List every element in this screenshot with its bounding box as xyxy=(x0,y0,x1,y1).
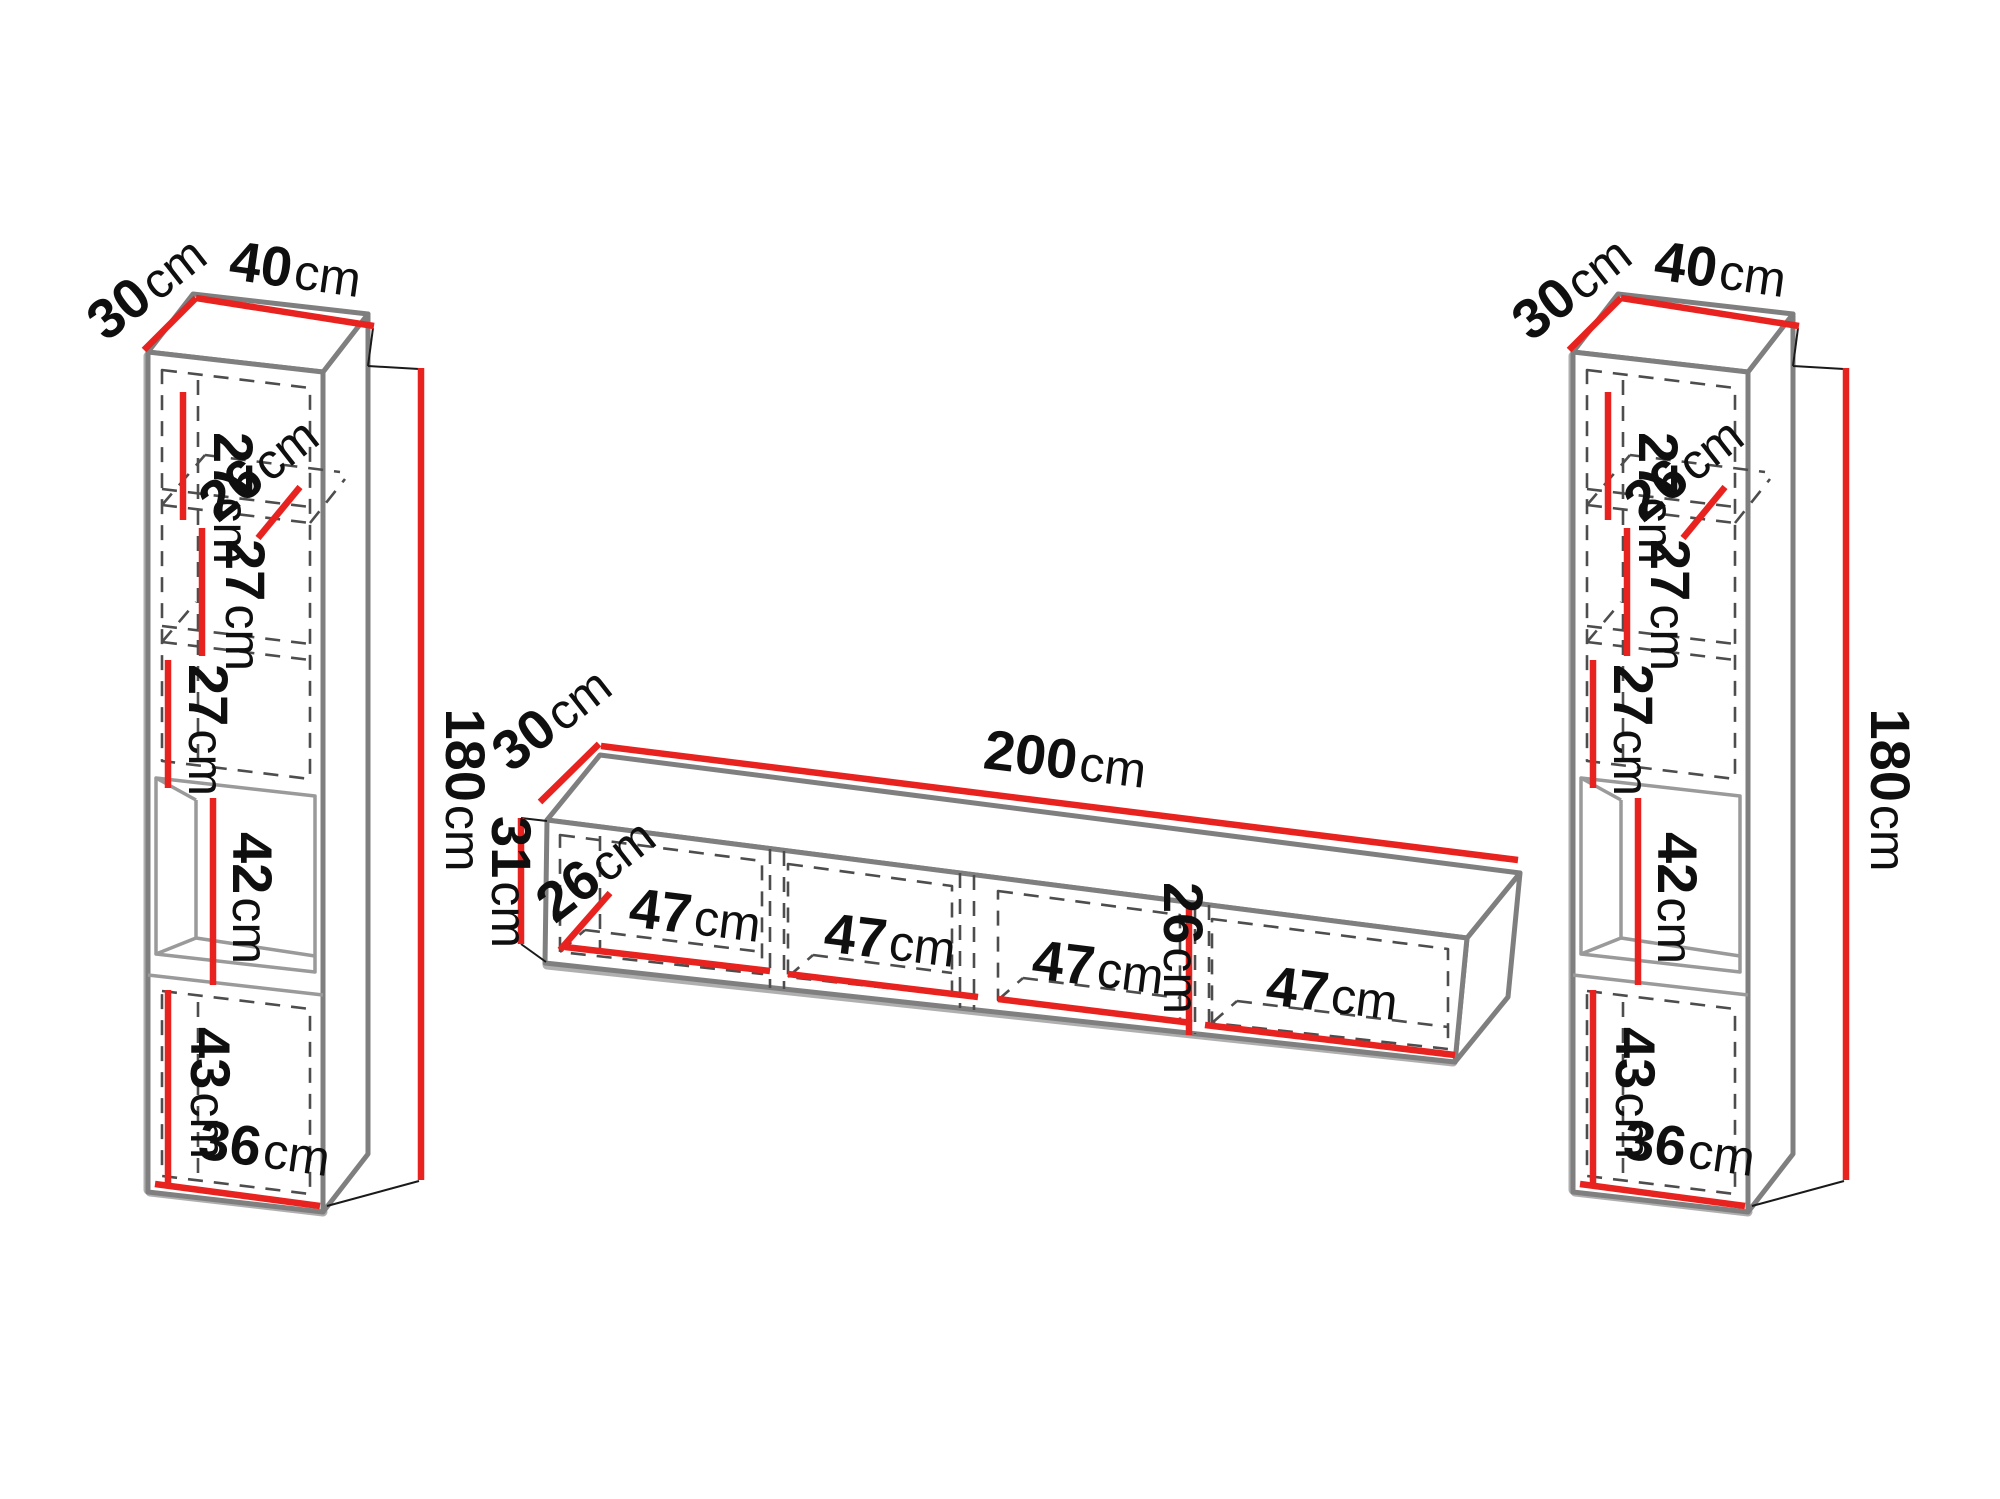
dim-value: 47 xyxy=(821,900,891,970)
dim-unit: cm xyxy=(1685,1122,1759,1187)
dim-unit: cm xyxy=(691,889,764,953)
right-cabinet-side-face xyxy=(1748,314,1793,1212)
dim-unit: cm xyxy=(222,897,278,964)
left-cabinet-width-label: 40cm xyxy=(226,228,365,309)
dim-unit: cm xyxy=(886,914,959,978)
right-cabinet-ext-top-b xyxy=(1793,366,1844,369)
tv-stand: 30cm 200cm 31cm 26cm 47cm 47cm 47cm 47cm… xyxy=(480,652,1520,1062)
left-cabinet-shelf2-label: 27cm xyxy=(214,539,277,671)
left-cabinet-side-face xyxy=(323,314,368,1212)
dim-value: 180 xyxy=(1859,708,1922,801)
tv-stand-innerheight-label: 26cm xyxy=(1152,882,1215,1014)
dim-unit: cm xyxy=(1603,729,1659,796)
right-cabinet-width-label: 40cm xyxy=(1651,228,1790,309)
right-cabinet: 30cm 40cm 180cm 27cm 26cm 27cm 27cm 42cm… xyxy=(1500,221,1922,1212)
dim-value: 27 xyxy=(214,539,277,601)
dim-unit: cm xyxy=(1647,897,1703,964)
left-cabinet-ext-top-b xyxy=(368,366,419,369)
dim-value: 47 xyxy=(626,875,696,945)
dim-unit: cm xyxy=(178,729,234,796)
dim-value: 200 xyxy=(981,717,1081,791)
dim-unit: cm xyxy=(1328,967,1401,1031)
dim-value: 40 xyxy=(1651,228,1721,299)
dim-value: 47 xyxy=(1263,953,1333,1023)
dim-value: 27 xyxy=(1639,539,1702,601)
dim-value: 180 xyxy=(434,708,497,801)
left-cabinet: 30cm 40cm 180cm 27cm 26cm 27cm 27cm 42cm… xyxy=(75,221,497,1212)
left-cabinet-shelf3-label: 27cm xyxy=(177,664,240,796)
dim-value: 42 xyxy=(1646,832,1709,894)
dim-value: 27 xyxy=(1602,664,1665,726)
dim-unit: cm xyxy=(215,604,271,671)
diagram-canvas: 30cm 40cm 180cm 27cm 26cm 27cm 27cm 42cm… xyxy=(0,0,2000,1499)
dim-unit: cm xyxy=(1153,947,1209,1014)
dim-value: 42 xyxy=(221,832,284,894)
dim-value: 43 xyxy=(179,1027,242,1089)
dim-value: 43 xyxy=(1604,1027,1667,1089)
dim-value: 31 xyxy=(480,816,543,878)
dim-value: 36 xyxy=(1620,1107,1690,1178)
right-cabinet-niche-label: 42cm xyxy=(1646,832,1709,964)
dim-value: 36 xyxy=(195,1107,265,1178)
left-cabinet-niche-label: 42cm xyxy=(221,832,284,964)
dim-value: 47 xyxy=(1029,927,1099,997)
right-cabinet-height-label: 180cm xyxy=(1859,708,1922,871)
dim-unit: cm xyxy=(1076,735,1149,799)
furniture-dimension-diagram: 30cm 40cm 180cm 27cm 26cm 27cm 27cm 42cm… xyxy=(0,0,2000,1499)
dim-unit: cm xyxy=(1860,805,1916,872)
right-cabinet-shelf2-label: 27cm xyxy=(1639,539,1702,671)
dim-unit: cm xyxy=(1716,243,1790,308)
dim-value: 26 xyxy=(1152,882,1215,944)
dim-unit: cm xyxy=(260,1122,334,1187)
dim-value: 27 xyxy=(177,664,240,726)
tv-stand-width-label: 200cm xyxy=(981,717,1151,799)
dim-value: 40 xyxy=(226,228,296,299)
dim-unit: cm xyxy=(291,243,365,308)
dim-unit: cm xyxy=(1640,604,1696,671)
right-cabinet-shelf3-label: 27cm xyxy=(1602,664,1665,796)
